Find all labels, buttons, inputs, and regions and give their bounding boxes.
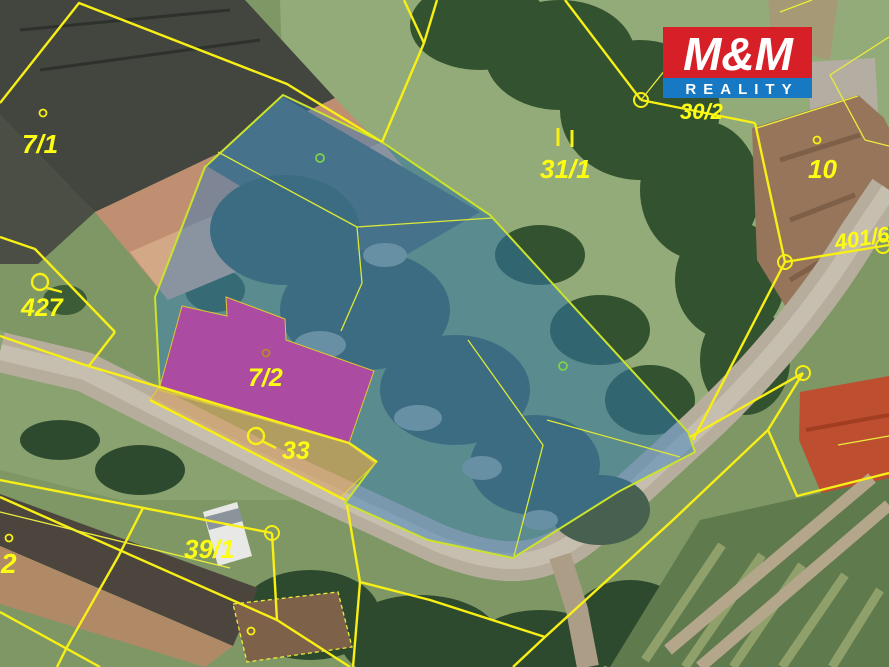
parcel-label-10: 10 xyxy=(808,154,837,184)
realty-logo: M&M REALITY xyxy=(663,27,812,98)
parcel-label-30-2: 30/2 xyxy=(680,99,724,124)
parcel-label-39-1: 39/1 xyxy=(184,534,235,564)
parcel-label-7-1: 7/1 xyxy=(22,129,58,159)
parcel-label-7-2: 7/2 xyxy=(248,364,283,392)
parcel-label-427: 427 xyxy=(20,294,64,322)
cadastral-map-screenshot: 7/1 427 7/2 33 39/1 2 31/1 30/2 10 401/6… xyxy=(0,0,889,667)
logo-text-reality: REALITY xyxy=(685,81,798,98)
parcel-label-33: 33 xyxy=(282,437,310,465)
logo-text-mm: M&M xyxy=(683,28,795,80)
parcel-label-2: 2 xyxy=(0,548,17,579)
parcel-label-31-1: 31/1 xyxy=(540,154,591,184)
map-canvas: 7/1 427 7/2 33 39/1 2 31/1 30/2 10 401/6… xyxy=(0,0,889,667)
